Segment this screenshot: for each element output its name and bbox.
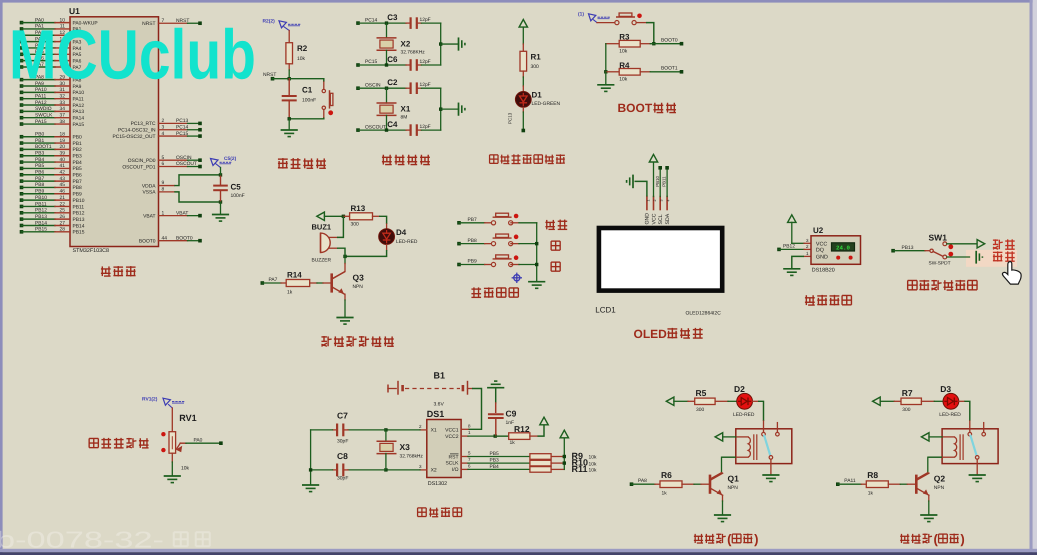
svg-text:(: ( [727,531,732,546]
svg-text:PB3: PB3 [73,154,83,160]
svg-text:VCC1: VCC1 [445,428,459,434]
svg-text:RST: RST [449,454,459,460]
svg-text:18: 18 [60,132,66,138]
svg-text:PB11: PB11 [35,201,47,207]
svg-text:12pF: 12pF [420,17,431,23]
svg-text:PA11: PA11 [35,93,47,99]
svg-text:BOOT0: BOOT0 [176,235,193,241]
svg-text:BOOT0: BOOT0 [139,238,156,244]
svg-text:PB0: PB0 [35,132,45,138]
svg-text:1: 1 [162,210,165,216]
svg-text:12pF: 12pF [420,59,431,65]
svg-text:B1: B1 [434,371,446,381]
svg-text:PB5: PB5 [35,163,45,169]
svg-text:PB14: PB14 [73,223,85,229]
svg-text:PB12: PB12 [35,208,47,214]
svg-text:D4: D4 [396,228,407,237]
svg-text:STM32F103C8: STM32F103C8 [73,248,110,254]
svg-text:PC15: PC15 [365,59,378,65]
svg-text:BUZ1: BUZ1 [312,222,332,231]
svg-text:LED-RED: LED-RED [733,412,755,418]
svg-text:28: 28 [60,227,66,233]
svg-text:1k: 1k [868,490,874,496]
svg-text:12pF: 12pF [420,82,431,88]
svg-text:PB12: PB12 [783,244,795,250]
svg-text:24.0: 24.0 [836,244,850,251]
svg-text:10k: 10k [297,56,306,62]
svg-text:PB4: PB4 [35,157,45,163]
svg-text:X1: X1 [401,105,411,114]
svg-text:46: 46 [60,189,66,195]
svg-text:MCUclub: MCUclub [9,16,256,94]
svg-text:RV1: RV1 [179,413,196,423]
svg-text:R6: R6 [661,470,672,480]
svg-text:R8: R8 [867,470,878,480]
svg-text:R14: R14 [287,271,302,280]
svg-text:25: 25 [60,208,66,214]
svg-text:PB11: PB11 [662,176,667,187]
svg-text:VCC: VCC [651,213,657,224]
svg-text:C8: C8 [337,451,348,461]
svg-text:C1: C1 [302,86,313,95]
svg-text:Q3: Q3 [353,273,365,283]
svg-text:10k: 10k [619,77,628,83]
svg-text:R1: R1 [531,53,542,62]
svg-text:PC15-OSC32_OUT: PC15-OSC32_OUT [113,134,156,140]
svg-text:): ) [754,531,758,546]
svg-text:I/O: I/O [452,467,459,473]
svg-text:b-0078-32-: b-0078-32- [0,527,164,553]
svg-text:OSCIN: OSCIN [176,155,192,161]
svg-text:DS18B20: DS18B20 [812,268,835,274]
svg-text:PB10: PB10 [655,176,660,187]
svg-text:PA8: PA8 [638,478,647,484]
svg-text:PB13: PB13 [73,217,85,223]
svg-text:1nF: 1nF [506,420,515,426]
svg-text:27: 27 [60,220,66,226]
svg-text:X1: X1 [431,428,437,434]
svg-text:SW1: SW1 [929,232,948,242]
svg-text:R13: R13 [351,204,366,213]
svg-text:100nF: 100nF [302,98,316,104]
svg-text:9: 9 [162,180,165,186]
svg-text:R12: R12 [514,424,530,434]
svg-text:R7: R7 [902,388,913,398]
svg-text:2: 2 [162,118,165,124]
svg-text:8M: 8M [401,115,408,121]
svg-text:BOOT0: BOOT0 [661,38,678,44]
svg-text:PB4: PB4 [73,160,83,166]
svg-text:PB11: PB11 [73,204,85,210]
svg-text:PC14: PC14 [365,17,378,23]
svg-text:OSCOUT: OSCOUT [176,161,197,167]
svg-text:PB0: PB0 [73,135,83,141]
svg-text:30pF: 30pF [337,439,348,445]
svg-text:PB5: PB5 [73,166,83,172]
svg-text:1k: 1k [287,290,293,296]
svg-text:45: 45 [60,182,66,188]
svg-text:SWDIO: SWDIO [35,106,52,112]
svg-text:PA7: PA7 [269,277,278,283]
svg-text:3: 3 [162,124,165,130]
svg-text:1: 1 [646,200,650,202]
svg-text:PB9: PB9 [35,189,45,195]
svg-text:PB15: PB15 [35,227,47,233]
svg-text:PB9: PB9 [468,259,478,265]
svg-text:PA15: PA15 [73,122,85,128]
svg-text:32.768KHz: 32.768KHz [401,50,426,56]
svg-text:PC14: PC14 [176,124,189,130]
svg-text:): ) [960,531,964,546]
svg-text:C3: C3 [387,13,398,22]
svg-text:PC13: PC13 [508,112,513,124]
svg-text:D3: D3 [940,384,951,394]
svg-text:300: 300 [696,407,704,413]
svg-text:OLED: OLED [634,327,668,341]
svg-text:(: ( [933,531,938,546]
svg-text:PB8: PB8 [468,238,478,244]
svg-text:BOOT: BOOT [618,101,653,115]
svg-text:8: 8 [162,187,165,193]
svg-text:BOOT1: BOOT1 [661,66,678,72]
svg-text:R11: R11 [572,464,588,474]
svg-text:SWCLK: SWCLK [35,113,53,119]
svg-text:D1: D1 [532,91,543,100]
svg-text:10k: 10k [619,49,628,55]
svg-text:VSSA: VSSA [142,190,156,196]
svg-text:LED-RED: LED-RED [939,412,961,418]
svg-text:PB1: PB1 [73,141,83,147]
svg-text:PA14: PA14 [73,116,85,122]
svg-text:VDDA: VDDA [142,183,156,189]
svg-text:OSCOUT: OSCOUT [365,124,386,130]
svg-text:32.768kHz: 32.768kHz [400,454,424,460]
svg-text:R2(2): R2(2) [263,19,276,25]
svg-text:PB7: PB7 [73,179,83,185]
svg-text:PA13: PA13 [73,109,85,115]
svg-text:26: 26 [60,214,66,220]
svg-text:C2: C2 [387,78,398,87]
svg-text:300: 300 [351,222,360,228]
svg-text:LCD1: LCD1 [595,306,616,315]
svg-text:300: 300 [902,407,910,413]
svg-text:OSCIN: OSCIN [365,82,381,88]
svg-text:X3: X3 [400,442,411,452]
svg-text:PB5: PB5 [490,451,500,457]
svg-text:44: 44 [162,235,168,241]
svg-text:GND: GND [816,255,828,261]
svg-text:PB3: PB3 [35,151,45,157]
svg-text:PB13: PB13 [902,245,914,251]
svg-text:4: 4 [667,200,671,202]
svg-text:PC13_RTC: PC13_RTC [131,121,156,127]
svg-text:NPN: NPN [353,284,364,290]
svg-text:19: 19 [60,138,66,144]
svg-text:PB6: PB6 [35,170,45,176]
svg-text:PA0: PA0 [194,437,203,443]
svg-text:PB7: PB7 [35,176,45,182]
svg-text:PB13: PB13 [35,214,47,220]
svg-text:X2: X2 [401,40,411,49]
svg-text:SCL: SCL [658,214,664,224]
svg-text:41: 41 [60,163,66,169]
svg-text:PB8: PB8 [73,185,83,191]
svg-text:PA15: PA15 [35,119,47,125]
svg-text:33: 33 [60,100,66,106]
svg-text:VCC: VCC [816,241,827,247]
svg-text:10k: 10k [589,455,597,461]
svg-text:SDA: SDA [665,213,671,224]
svg-text:(1): (1) [578,12,584,18]
svg-text:R2: R2 [297,44,308,53]
svg-text:BUZZER: BUZZER [312,258,332,264]
svg-text:PC13: PC13 [176,118,189,124]
svg-text:4: 4 [162,131,165,137]
svg-text:SCLK: SCLK [445,460,459,466]
svg-text:37: 37 [60,113,66,119]
svg-text:DQ: DQ [816,248,824,254]
svg-text:2: 2 [653,200,657,202]
svg-text:32: 32 [60,93,66,99]
svg-text:PB1: PB1 [35,138,45,144]
svg-text:PB14: PB14 [35,220,47,226]
svg-text:OSCIN_PD0: OSCIN_PD0 [128,158,156,164]
svg-text:SW-SPDT: SW-SPDT [929,261,951,267]
svg-text:12pF: 12pF [420,124,431,130]
svg-text:PC15: PC15 [176,131,189,137]
svg-text:30pF: 30pF [337,475,348,481]
svg-text:NRST: NRST [263,72,276,78]
svg-text:6: 6 [162,161,165,167]
svg-text:OLED12864I2C: OLED12864I2C [686,311,722,317]
svg-text:1k: 1k [510,440,516,446]
svg-text:39: 39 [60,151,66,157]
svg-text:5: 5 [162,155,165,161]
svg-text:PA12: PA12 [35,100,47,106]
svg-text:PA12: PA12 [73,103,85,109]
svg-text:Q1: Q1 [728,474,740,484]
svg-text:GND: GND [645,213,651,225]
svg-text:10k: 10k [181,465,190,471]
svg-text:PB10: PB10 [73,198,85,204]
svg-text:PA11: PA11 [73,96,85,102]
svg-text:300: 300 [531,64,540,70]
svg-text:Q2: Q2 [934,474,946,484]
svg-text:OSCOUT_PD1: OSCOUT_PD1 [122,164,155,170]
svg-text:NPN: NPN [728,485,739,491]
svg-text:PA11: PA11 [844,478,856,484]
svg-text:PB2: PB2 [73,147,83,153]
svg-text:3.6V: 3.6V [434,402,445,408]
svg-text:C5(2): C5(2) [224,156,237,162]
svg-text:NPN: NPN [934,485,945,491]
svg-text:10k: 10k [589,468,597,474]
svg-text:43: 43 [60,176,66,182]
svg-text:21: 21 [60,195,66,201]
svg-text:LED-RED: LED-RED [396,239,418,245]
svg-text:3: 3 [660,200,664,202]
svg-text:U2: U2 [813,226,824,235]
svg-text:PB10: PB10 [35,195,47,201]
svg-text:RV1(2): RV1(2) [142,397,158,403]
svg-text:42: 42 [60,170,66,176]
svg-text:VBAT: VBAT [143,213,155,219]
svg-text:10k: 10k [589,461,597,467]
svg-text:R3: R3 [619,33,630,42]
svg-text:PB15: PB15 [73,230,85,236]
svg-text:D2: D2 [734,384,745,394]
svg-text:34: 34 [60,106,66,112]
svg-text:VCC2: VCC2 [445,434,459,440]
svg-text:1k: 1k [662,490,668,496]
svg-text:DS1302: DS1302 [428,481,447,487]
svg-text:R4: R4 [619,61,630,70]
svg-text:R5: R5 [696,388,707,398]
svg-text:100nF: 100nF [231,193,245,199]
svg-text:20: 20 [60,144,66,150]
svg-text:VBAT: VBAT [176,210,188,216]
svg-text:PB8: PB8 [35,182,45,188]
svg-text:C4: C4 [387,120,398,129]
svg-text:LED-GREEN: LED-GREEN [532,101,561,107]
svg-text:PB9: PB9 [73,192,83,198]
svg-text:X2: X2 [431,468,437,474]
svg-text:C5: C5 [231,183,242,192]
svg-text:C9: C9 [506,409,517,419]
svg-text:PB6: PB6 [73,173,83,179]
svg-text:BOOT1: BOOT1 [35,144,52,150]
svg-text:PB7: PB7 [468,217,478,223]
svg-text:PB12: PB12 [73,211,85,217]
svg-text:22: 22 [60,201,66,207]
svg-text:C7: C7 [337,411,348,421]
svg-text:C6: C6 [387,55,398,64]
svg-text:40: 40 [60,157,66,163]
svg-text:DS1: DS1 [427,409,445,419]
svg-text:PB4: PB4 [490,464,500,470]
svg-text:PB3: PB3 [490,458,500,464]
svg-text:38: 38 [60,119,66,125]
svg-text:PC14-OSC32_IN: PC14-OSC32_IN [118,128,156,134]
